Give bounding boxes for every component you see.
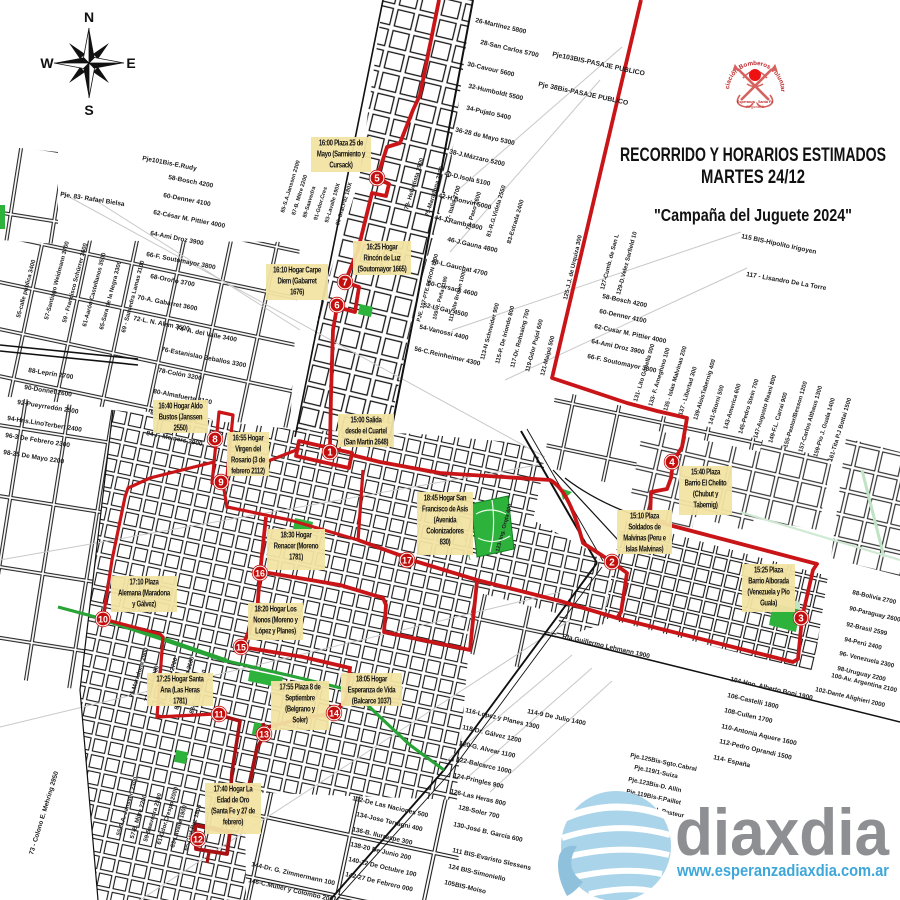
svg-text:17: 17 — [402, 556, 412, 566]
svg-text:10: 10 — [98, 615, 108, 625]
svg-text:5: 5 — [374, 174, 380, 185]
svg-text:16:55 HogarVirgen delRosario (: 16:55 HogarVirgen delRosario (3 defebrer… — [231, 432, 265, 475]
svg-text:E: E — [126, 55, 135, 71]
svg-text:S: S — [84, 102, 93, 118]
svg-text:3: 3 — [798, 614, 804, 625]
svg-text:diaxdia: diaxdia — [675, 795, 890, 869]
svg-text:8: 8 — [212, 435, 218, 446]
svg-text:4: 4 — [669, 458, 675, 469]
svg-text:7: 7 — [342, 278, 348, 289]
svg-text:Esperanza - Santa Fe: Esperanza - Santa Fe — [737, 100, 773, 104]
svg-text:16: 16 — [255, 569, 265, 579]
svg-text:11: 11 — [214, 710, 223, 720]
svg-text:W: W — [40, 55, 54, 71]
svg-text:14: 14 — [329, 709, 339, 719]
svg-text:9: 9 — [218, 478, 224, 489]
svg-text:2: 2 — [609, 558, 615, 569]
svg-text:Regional 3: Regional 3 — [746, 105, 763, 109]
svg-text:RECORRIDO Y HORARIOS ESTIMADOS: RECORRIDO Y HORARIOS ESTIMADOS — [620, 145, 886, 166]
svg-text:N: N — [84, 9, 94, 25]
svg-text:15: 15 — [236, 643, 246, 653]
svg-text:"Campaña del Juguete 2024": "Campaña del Juguete 2024" — [654, 205, 852, 225]
svg-text:www.esperanzadiaxdia.com.ar: www.esperanzadiaxdia.com.ar — [676, 862, 889, 880]
svg-text:1: 1 — [327, 448, 333, 459]
svg-text:MARTES 24/12: MARTES 24/12 — [701, 167, 805, 188]
svg-text:12: 12 — [193, 835, 203, 845]
svg-text:18:20 Hogar LosNonos (Moreno y: 18:20 Hogar LosNonos (Moreno yLópez y Pl… — [253, 603, 298, 635]
svg-text:13: 13 — [259, 730, 269, 740]
svg-text:6: 6 — [334, 301, 340, 312]
